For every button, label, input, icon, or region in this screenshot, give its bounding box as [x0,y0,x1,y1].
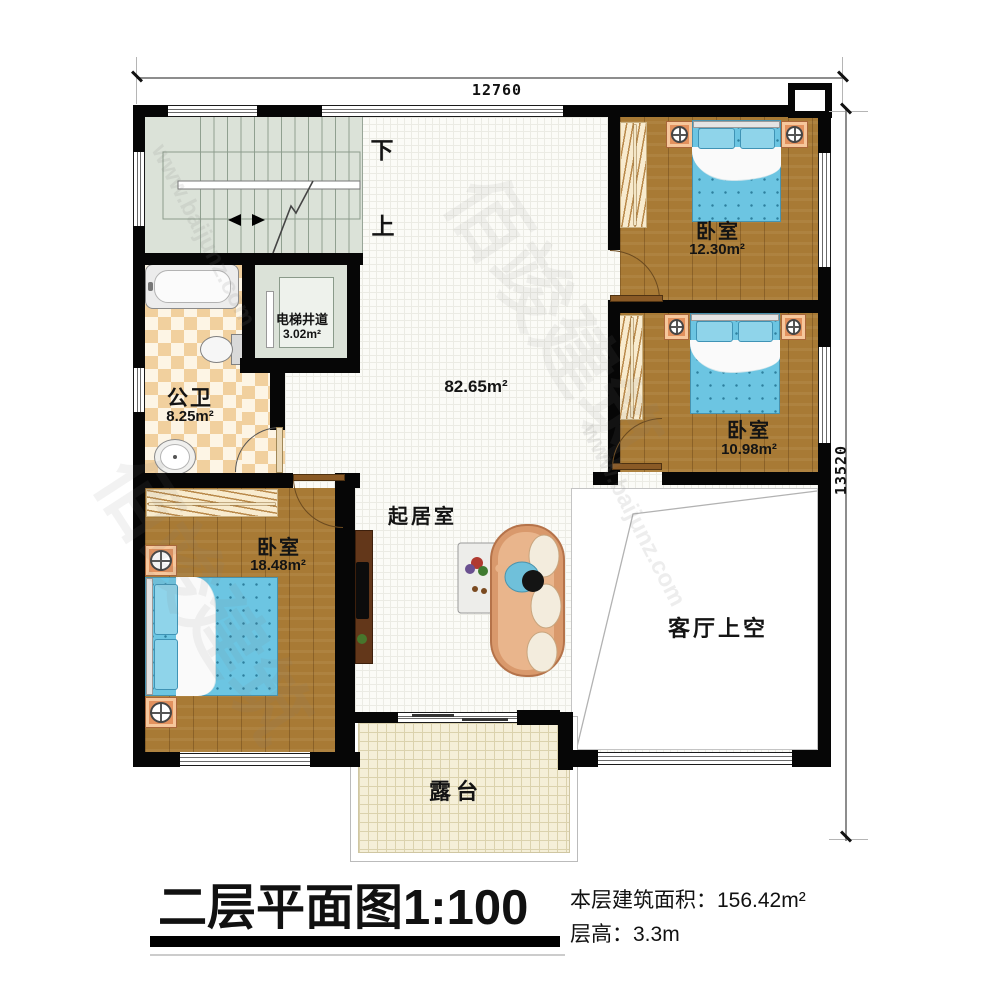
bathtub-inner [154,270,231,303]
wall [573,750,598,767]
wall [662,472,831,485]
window [818,153,831,267]
wall [133,105,145,152]
door-leaf [610,295,663,302]
bed-sheet [690,340,780,373]
bed-bottom-left [145,577,278,696]
bed-top-right [692,120,781,222]
bathroom-area: 8.25m² [150,409,230,426]
person-head [522,570,544,592]
void-label: 客厅上空 [648,617,788,641]
floor-area-line: 本层建筑面积：156.42m² [570,884,806,918]
floor-height-label: 层高： [570,923,633,946]
nightstand [664,314,689,340]
toilet-bowl [200,336,233,363]
bathtub-faucet [148,282,153,291]
door-leaf [293,474,345,481]
wall [242,265,255,363]
sliding-door-panel [462,718,508,721]
terrace-label: 露台 [414,780,498,804]
window [168,105,257,117]
sink-drain [173,455,177,459]
dimension-right-value: 13520 [832,441,850,499]
elevator-area: 3.02m² [276,328,328,341]
window [818,347,831,443]
window [133,368,145,412]
stair-up-label: 上 [367,214,399,239]
floor-area-label: 本层建筑面积： [570,889,717,912]
wall [347,253,360,373]
bedroom-top-right-label: 卧室 [687,221,749,243]
bathroom-label: 公卫 [159,387,221,410]
pillow [154,584,178,635]
nightstand [781,314,806,340]
wall [133,253,363,265]
dimension-top-value: 12760 [462,81,532,99]
lamp-icon [786,319,801,335]
bed-headboard [146,578,153,695]
wall [608,117,620,250]
wall [257,105,322,117]
bed-mid-right [690,313,780,414]
bed-headboard [691,314,779,321]
pillow [738,321,773,342]
floor-info: 本层建筑面积：156.42m² 层高：3.3m [570,884,806,951]
lamp-icon [671,126,688,143]
door-leaf [612,463,662,470]
living-area-label: 82.65m² [431,378,521,397]
door-leaf [276,427,283,473]
pillow [154,639,178,690]
living-room-label: 起居室 [375,506,470,528]
bedroom-mid-right-area: 10.98m² [709,442,789,459]
wall [517,710,560,725]
lamp-icon [669,319,684,335]
closet-bedroom-bottom-left [146,489,278,517]
wall [133,226,145,368]
pillow [696,321,733,342]
drawing-title-text: 二层平面图 [158,881,403,935]
pillow [698,128,735,149]
bedroom-mid-right-label: 卧室 [718,420,780,442]
wall [133,412,145,767]
wall [240,358,360,373]
floor-height-value: 3.3m [633,923,680,946]
wall [133,473,293,488]
elevator-label: 电梯井道 [271,313,333,327]
tv-screen [356,562,369,619]
drawing-title: 二层平面图1:100 [158,868,528,939]
pillow [740,128,775,149]
bedroom-bottom-left-area: 18.48m² [238,558,318,575]
lamp-icon [150,550,172,571]
title-underline-thin [150,954,565,956]
nightstand [781,121,808,148]
extension-line [136,57,137,104]
drawing-scale: 1:100 [403,881,528,935]
floor-height-line: 层高：3.3m [570,918,806,952]
lamp-icon [786,126,803,143]
wall [593,472,618,485]
wall [818,443,831,767]
wall [270,363,285,430]
floorplan-page: 下 上 82.65m² 起居室 客厅上空 露台 卧室 12.30m² 卧室 10… [0,0,1000,990]
window [133,152,145,226]
wall [558,712,573,770]
nightstand [145,697,177,728]
roof-notch [788,83,832,118]
title-underline-thick [150,936,560,947]
window [322,105,563,117]
window [598,752,792,765]
window [180,753,310,766]
bed-sheet [692,147,781,181]
sofa-group [455,520,570,682]
bed-sheet [176,577,216,696]
nightstand [666,121,693,148]
closet-bedroom-top-right [620,122,647,228]
stair-symbol [145,117,363,253]
bed-headboard [693,121,780,128]
extension-line [842,57,843,104]
bedroom-top-right-area: 12.30m² [677,242,757,259]
nightstand [145,545,177,576]
plant-icon [357,634,367,644]
lamp-icon [150,702,172,723]
wall [818,267,831,347]
floor-area-value: 156.42m² [717,889,806,912]
dimension-line-top [137,77,844,79]
sliding-door-panel [412,714,454,717]
bedroom-bottom-left-label: 卧室 [248,537,310,559]
closet-bedroom-mid-right [618,315,643,420]
stair-down-label: 下 [366,138,398,163]
